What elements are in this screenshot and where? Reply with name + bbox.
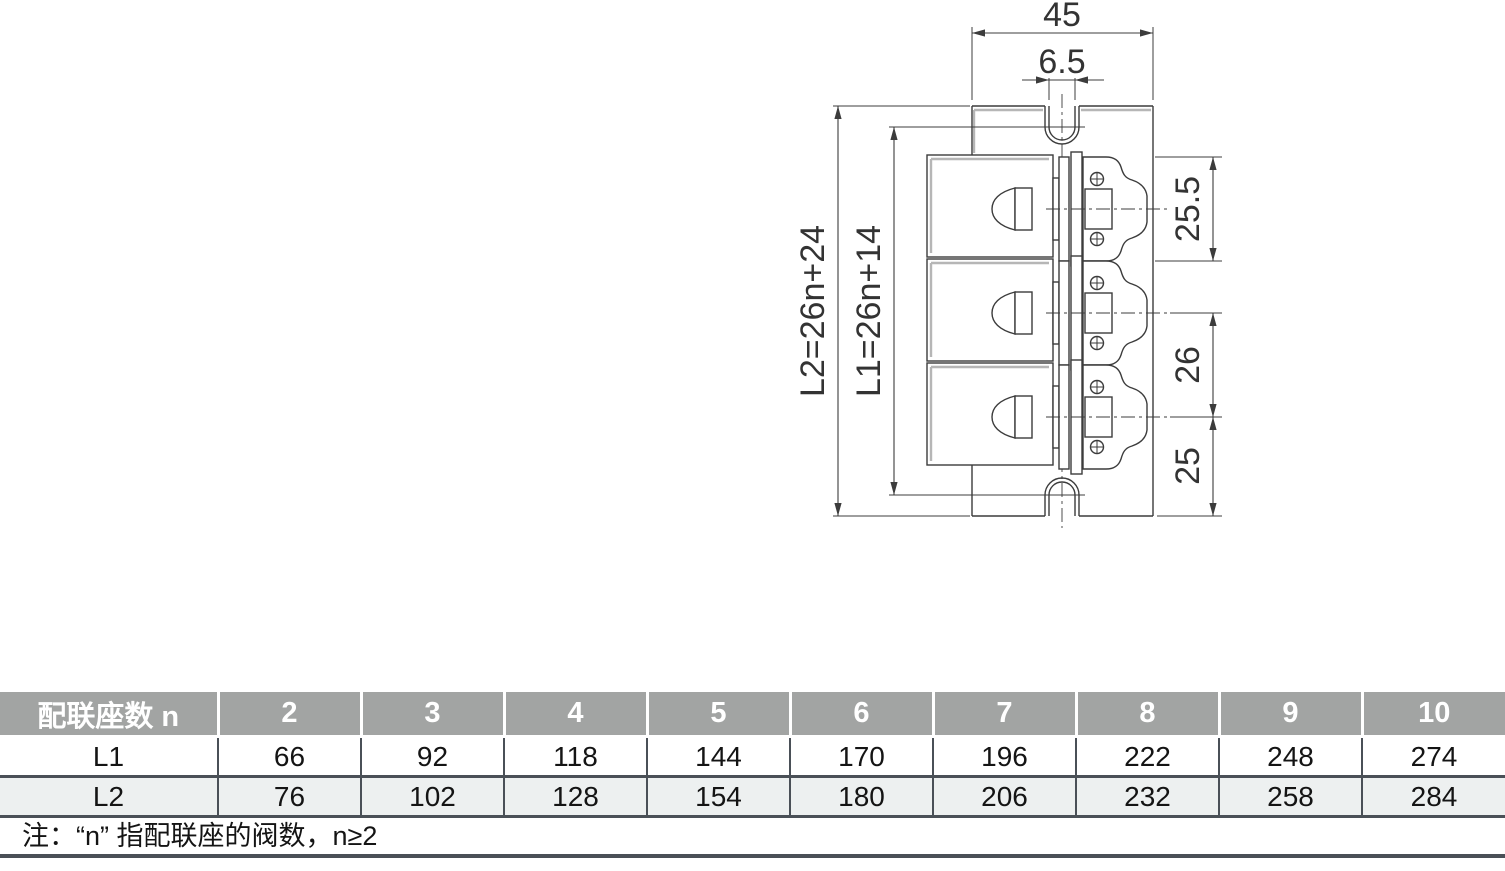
- table-row-l2: L2 76 102 128 154 180 206 232 258 284: [0, 777, 1505, 817]
- table-col-header: 7: [933, 692, 1076, 737]
- dimension-table-section: 配联座数 n 2 3 4 5 6 7 8 9 10 L1 66 92 118 1…: [0, 692, 1505, 858]
- table-cell: 76: [218, 777, 361, 817]
- dim-label-25-5: 25.5: [1169, 176, 1207, 242]
- table-col-header: 6: [790, 692, 933, 737]
- table-col-header: 4: [504, 692, 647, 737]
- table-col-header: 5: [647, 692, 790, 737]
- dim-label-l2: L2=26n+24: [794, 225, 832, 397]
- dim-label-6-5: 6.5: [1038, 43, 1085, 81]
- table-cell: 180: [790, 777, 933, 817]
- dimension-table: 配联座数 n 2 3 4 5 6 7 8 9 10 L1 66 92 118 1…: [0, 692, 1505, 818]
- table-cell: 206: [933, 777, 1076, 817]
- bottom-rule: [0, 854, 1505, 858]
- dim-label-l1: L1=26n+14: [850, 225, 888, 397]
- table-cell: 92: [361, 737, 504, 777]
- table-cell: 154: [647, 777, 790, 817]
- table-col-header: 3: [361, 692, 504, 737]
- technical-drawing: 45 6.5 L2=26n+24 L1=26n+14 2: [0, 0, 1505, 692]
- datasheet-page: 45 6.5 L2=26n+24 L1=26n+14 2: [0, 0, 1505, 871]
- dim-label-25: 25: [1169, 447, 1207, 485]
- valve-unit-3: [927, 360, 1168, 474]
- table-header-n-label: 配联座数 n: [0, 692, 218, 737]
- table-cell: 248: [1219, 737, 1362, 777]
- row-label-l2: L2: [0, 777, 218, 817]
- table-note: 注：“n” 指配联座的阀数，n≥2: [0, 818, 1505, 854]
- table-cell: 128: [504, 777, 647, 817]
- table-cell: 274: [1362, 737, 1505, 777]
- table-cell: 258: [1219, 777, 1362, 817]
- dim-label-45: 45: [1043, 0, 1081, 34]
- table-cell: 222: [1076, 737, 1219, 777]
- dim-slot-6-5: 6.5: [1022, 43, 1104, 100]
- dim-right-chain: 25.5 26 25: [1155, 157, 1222, 516]
- table-cell: 144: [647, 737, 790, 777]
- row-label-l1: L1: [0, 737, 218, 777]
- table-cell: 170: [790, 737, 933, 777]
- valve-unit-1: [927, 152, 1168, 266]
- table-cell: 196: [933, 737, 1076, 777]
- table-cell: 232: [1076, 777, 1219, 817]
- table-col-header: 9: [1219, 692, 1362, 737]
- dim-label-26: 26: [1169, 346, 1207, 384]
- table-cell: 118: [504, 737, 647, 777]
- table-col-header: 10: [1362, 692, 1505, 737]
- valve-unit-2: [927, 256, 1168, 370]
- table-cell: 284: [1362, 777, 1505, 817]
- table-cell: 66: [218, 737, 361, 777]
- table-col-header: 8: [1076, 692, 1219, 737]
- table-cell: 102: [361, 777, 504, 817]
- table-header-row: 配联座数 n 2 3 4 5 6 7 8 9 10: [0, 692, 1505, 737]
- table-col-header: 2: [218, 692, 361, 737]
- table-row-l1: L1 66 92 118 144 170 196 222 248 274: [0, 737, 1505, 777]
